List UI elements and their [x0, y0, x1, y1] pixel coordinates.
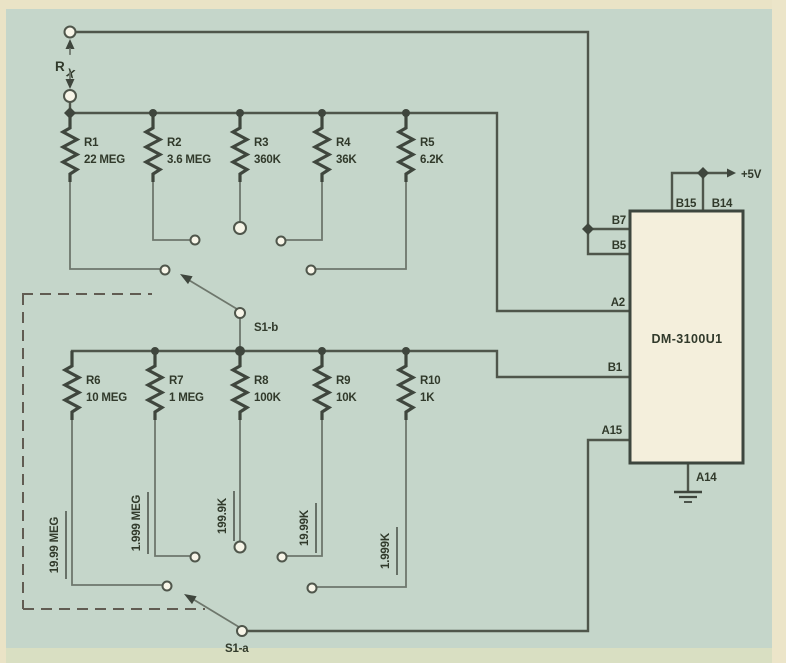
- resistor-name: R5: [420, 137, 435, 149]
- rx-terminal-top: [65, 27, 76, 38]
- junction-dot: [402, 109, 410, 117]
- ic-name-label: DM-3100U1: [652, 332, 723, 346]
- pin-label-b5: B5: [612, 240, 627, 252]
- resistor-name: R8: [254, 375, 269, 387]
- junction-dot: [318, 347, 326, 355]
- rx-label: R: [55, 59, 65, 74]
- resistor-value: 36K: [336, 154, 357, 166]
- s1a-contact-1: [163, 582, 172, 591]
- pin-label-a15: A15: [602, 425, 623, 437]
- resistor-name: R3: [254, 137, 268, 149]
- resistor-name: R7: [169, 375, 183, 387]
- s1b-label: S1-b: [254, 322, 278, 334]
- s1a-label: S1-a: [225, 643, 249, 655]
- resistor-name: R2: [167, 137, 181, 149]
- junction-dot: [236, 109, 244, 117]
- resistor-value: 6.2K: [420, 154, 444, 166]
- supply-label: +5V: [741, 169, 762, 181]
- right-scan-band: [772, 0, 786, 663]
- s1b-contact-5: [307, 266, 316, 275]
- bottom-scan-band: [6, 648, 772, 663]
- s1a-pivot: [237, 626, 247, 636]
- resistor-value: 100K: [254, 392, 282, 404]
- s1b-contact-4: [277, 237, 286, 246]
- resistor-value: 360K: [254, 154, 282, 166]
- resistor-name: R1: [84, 137, 99, 149]
- range-label-1_999meg: 1.999 MEG: [131, 495, 143, 552]
- pin-label-b14: B14: [712, 198, 733, 210]
- resistor-value: 22 MEG: [84, 154, 125, 166]
- pin-label-a14: A14: [696, 472, 717, 484]
- s1b-pivot: [235, 308, 245, 318]
- junction-dot: [149, 109, 157, 117]
- resistor-value: 10K: [336, 392, 357, 404]
- resistor-value: 1K: [420, 392, 435, 404]
- s1b-contact-1: [161, 266, 170, 275]
- pin-label-b15: B15: [676, 198, 697, 210]
- scanned-schematic-page: R X R1 22 MEG R2 3.6 MEG R3 360K R4 36K: [0, 0, 786, 663]
- resistor-value: 3.6 MEG: [167, 154, 211, 166]
- resistor-name: R9: [336, 375, 350, 387]
- s1a-contact-5: [308, 584, 317, 593]
- junction-dot: [318, 109, 326, 117]
- s1a-contact-3: [235, 542, 246, 553]
- range-label-19_99meg: 19.99 MEG: [49, 517, 61, 574]
- resistor-name: R6: [86, 375, 100, 387]
- pin-label-a2: A2: [611, 297, 625, 309]
- resistor-name: R10: [420, 375, 441, 387]
- s1a-contact-4: [278, 553, 287, 562]
- junction-dot: [235, 346, 245, 356]
- pin-label-b7: B7: [612, 215, 626, 227]
- junction-dot: [151, 347, 159, 355]
- rx-terminal-bottom: [64, 90, 76, 102]
- resistor-value: 1 MEG: [169, 392, 204, 404]
- s1a-contact-2: [191, 553, 200, 562]
- resistor-name: R4: [336, 137, 351, 149]
- range-label-199_9k: 199.9K: [217, 497, 229, 534]
- junction-dot: [402, 347, 410, 355]
- schematic-canvas: R X R1 22 MEG R2 3.6 MEG R3 360K R4 36K: [0, 0, 786, 663]
- s1b-contact-2: [191, 236, 200, 245]
- resistor-value: 10 MEG: [86, 392, 127, 404]
- pin-label-b1: B1: [608, 362, 623, 374]
- range-label-1_999k: 1.999K: [380, 532, 392, 569]
- s1b-contact-3: [234, 222, 246, 234]
- range-label-19_99k: 19.99K: [299, 509, 311, 546]
